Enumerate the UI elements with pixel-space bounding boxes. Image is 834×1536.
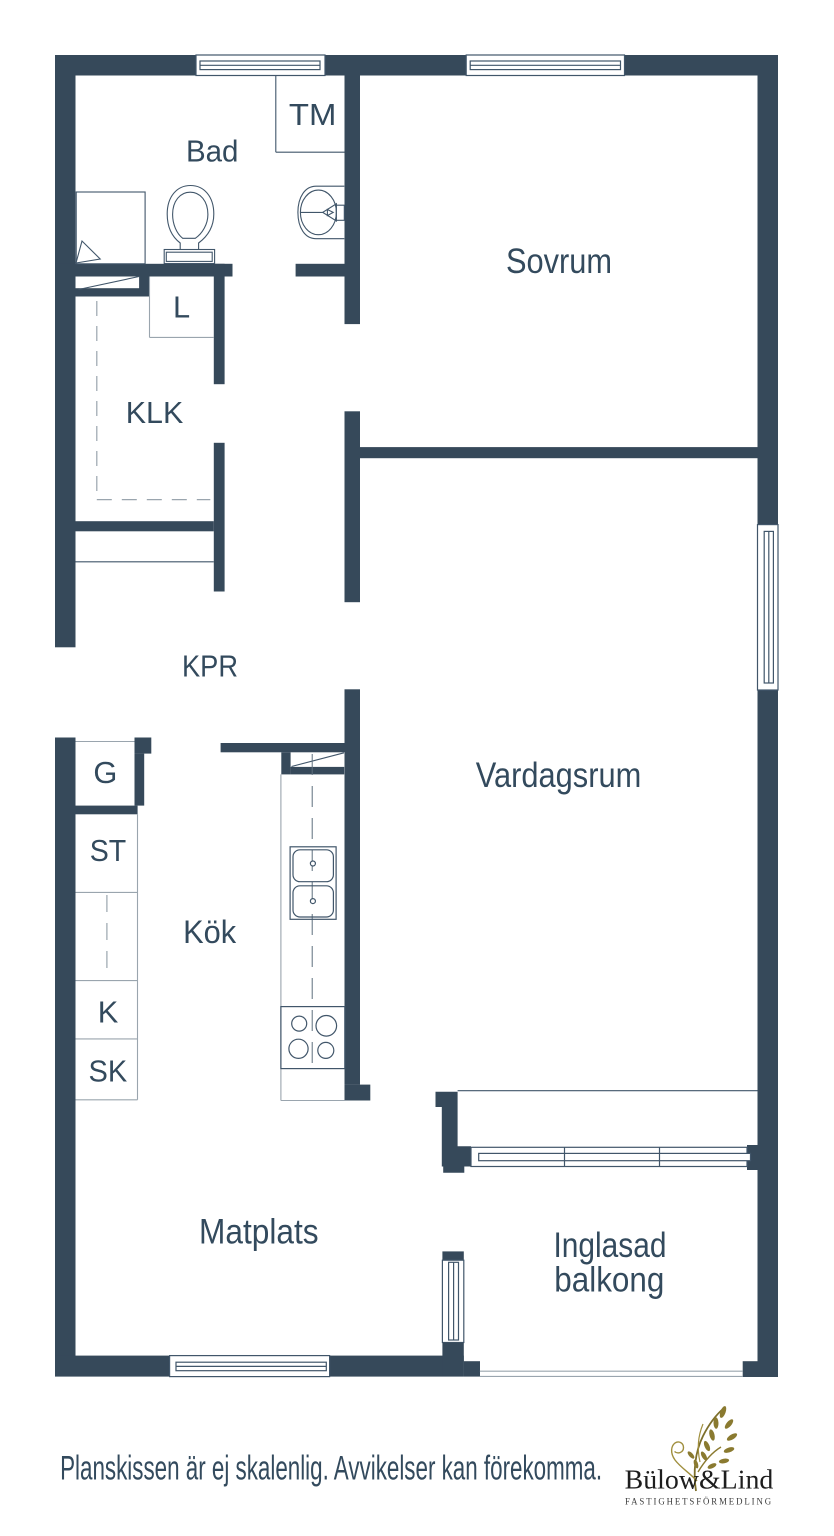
svg-text:G: G — [93, 755, 117, 790]
svg-text:Bülow&Lind: Bülow&Lind — [625, 1464, 774, 1495]
svg-text:ST: ST — [90, 833, 127, 868]
svg-text:Sovrum: Sovrum — [506, 242, 612, 281]
svg-text:Planskissen är ej skalenlig. A: Planskissen är ej skalenlig. Avvikelser … — [60, 1450, 602, 1488]
svg-text:balkong: balkong — [554, 1261, 664, 1300]
svg-text:TM: TM — [289, 97, 337, 132]
svg-text:Bad: Bad — [186, 134, 239, 169]
svg-text:Matplats: Matplats — [199, 1212, 319, 1251]
svg-text:KLK: KLK — [126, 395, 184, 430]
svg-text:Kök: Kök — [183, 913, 237, 950]
svg-text:FASTIGHETSFÖRMEDLING: FASTIGHETSFÖRMEDLING — [625, 1497, 773, 1507]
svg-text:KPR: KPR — [182, 649, 238, 684]
svg-text:Inglasad: Inglasad — [554, 1226, 667, 1265]
svg-text:Vardagsrum: Vardagsrum — [476, 756, 642, 795]
svg-text:K: K — [98, 995, 119, 1030]
svg-text:SK: SK — [89, 1054, 128, 1089]
svg-text:L: L — [173, 290, 190, 325]
